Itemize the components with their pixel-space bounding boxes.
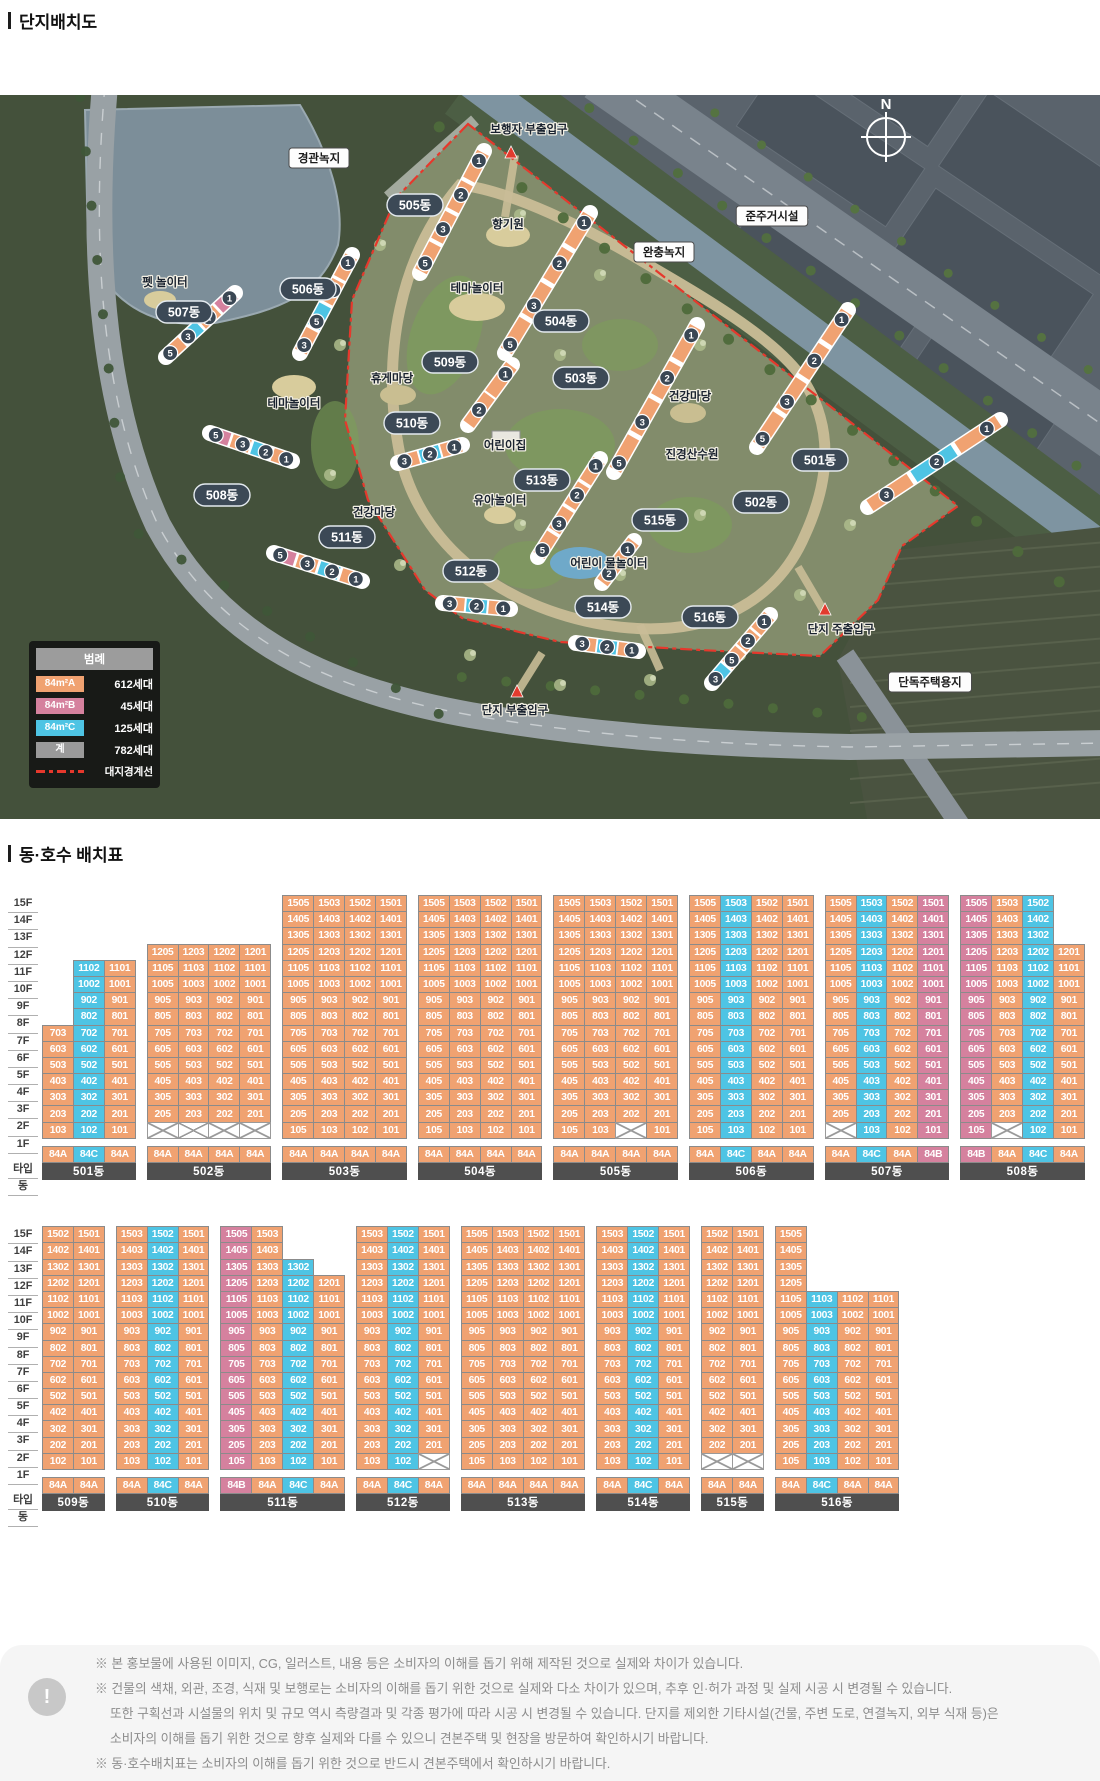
unit-cell: 802	[615, 1008, 647, 1025]
map-area-box: 경관녹지	[289, 148, 349, 168]
floor-label-column: 15F14F13F12F11F10F9F8F7F6F5F4F3F2F1F타입동	[8, 1226, 38, 1527]
unit-cell: 901	[553, 1323, 585, 1340]
entrance-number-badge: 2	[469, 599, 484, 614]
unit-cell: 101	[782, 1122, 814, 1139]
unit-cell: 1203	[313, 944, 345, 961]
unit-cell: 705	[282, 1025, 314, 1042]
floor-label: 9F	[8, 998, 38, 1016]
unit-cell: 202	[387, 1437, 419, 1454]
empty-slot	[73, 927, 105, 944]
unit-cell: 501	[239, 1057, 271, 1074]
unit-cell: 102	[480, 1122, 512, 1139]
floor-label: 8F	[8, 1015, 38, 1033]
unit-cell: 701	[782, 1025, 814, 1042]
type-cell: 84A	[492, 1477, 524, 1494]
unit-cell: 302	[523, 1420, 555, 1437]
unit-cell: 1402	[701, 1242, 733, 1259]
unit-cell: 1405	[825, 911, 857, 928]
unit-cell: 205	[282, 1105, 314, 1122]
unit-cell: 1101	[917, 960, 949, 977]
entrance-number-badge: 3	[181, 329, 196, 344]
unit-cell: 803	[116, 1340, 148, 1357]
unit-cell: 403	[492, 1404, 524, 1421]
unit-cell-crossed	[208, 1122, 240, 1139]
unit-cell: 701	[313, 1356, 345, 1373]
unit-cell: 1402	[615, 911, 647, 928]
unit-cell: 402	[42, 1404, 74, 1421]
unit-cell: 705	[461, 1356, 493, 1373]
unit-cell: 1001	[178, 1307, 210, 1324]
unit-cell: 703	[313, 1025, 345, 1042]
unit-cell: 1502	[615, 895, 647, 912]
unit-cell: 1303	[584, 927, 616, 944]
floor-label: 4F	[8, 1084, 38, 1102]
unit-cell: 602	[73, 1041, 105, 1058]
unit-cell: 505	[775, 1388, 807, 1405]
unit-cell: 1201	[658, 1275, 690, 1292]
unit-cell: 1302	[42, 1259, 74, 1276]
unit-cell: 902	[282, 1323, 314, 1340]
unit-cell: 502	[615, 1057, 647, 1074]
unit-cell: 905	[553, 992, 585, 1009]
empty-slot	[73, 944, 105, 961]
unit-cell: 1103	[449, 960, 481, 977]
unit-cell: 305	[282, 1089, 314, 1106]
unit-cell: 301	[375, 1089, 407, 1106]
type-cell: 84C	[1022, 1146, 1054, 1163]
unit-cell: 1501	[917, 895, 949, 912]
unit-cell: 1003	[356, 1307, 388, 1324]
unit-cell: 702	[282, 1356, 314, 1373]
unit-cell: 302	[208, 1089, 240, 1106]
entrance-number-badge: 1	[620, 542, 635, 557]
unit-cell: 202	[344, 1105, 376, 1122]
unit-cell: 303	[42, 1089, 74, 1106]
unit-cell: 902	[751, 992, 783, 1009]
unit-cell: 105	[553, 1122, 585, 1139]
unit-cell: 201	[868, 1437, 900, 1454]
unit-cell: 701	[418, 1356, 450, 1373]
unit-cell: 403	[806, 1404, 838, 1421]
unit-cell: 402	[615, 1073, 647, 1090]
empty-slot	[806, 1275, 838, 1292]
entrance-number-badge: 3	[300, 556, 315, 571]
unit-cell: 505	[282, 1057, 314, 1074]
unit-cell: 203	[251, 1437, 283, 1454]
unit-cell: 1405	[689, 911, 721, 928]
unit-cell: 601	[868, 1372, 900, 1389]
type-cell: 84A	[178, 1146, 210, 1163]
unit-cell: 401	[658, 1404, 690, 1421]
unit-cell: 1005	[689, 976, 721, 993]
svg-text:3: 3	[240, 440, 245, 451]
unit-cell: 402	[523, 1404, 555, 1421]
unit-cell: 1201	[553, 1275, 585, 1292]
type-cell: 84A	[689, 1146, 721, 1163]
type-cell: 84A	[701, 1477, 733, 1494]
unit-cell: 905	[689, 992, 721, 1009]
unit-cell: 1202	[208, 944, 240, 961]
unit-cell: 1002	[523, 1307, 555, 1324]
svg-text:5: 5	[507, 340, 513, 351]
svg-text:1: 1	[452, 443, 458, 454]
compass-north-letter: N	[881, 96, 892, 113]
unit-cell: 503	[806, 1388, 838, 1405]
svg-text:507동: 507동	[168, 306, 201, 320]
unit-cell: 1005	[825, 976, 857, 993]
unit-cell: 1202	[344, 944, 376, 961]
unit-cell: 1503	[116, 1226, 148, 1243]
unit-cell: 601	[375, 1041, 407, 1058]
unit-cell: 1003	[596, 1307, 628, 1324]
unit-cell: 305	[220, 1420, 252, 1437]
unit-cell: 1105	[418, 960, 450, 977]
unit-cell: 602	[344, 1041, 376, 1058]
unit-cell: 202	[523, 1437, 555, 1454]
unit-cell: 1205	[825, 944, 857, 961]
building-stack-504동: 1505150315021501140514031402140113051303…	[418, 895, 543, 1180]
unit-cell: 503	[991, 1057, 1023, 1074]
unit-cell: 1001	[1053, 976, 1085, 993]
unit-cell: 401	[73, 1404, 105, 1421]
unit-cell: 1401	[73, 1242, 105, 1259]
unit-cell: 1403	[116, 1242, 148, 1259]
unit-cell: 402	[344, 1073, 376, 1090]
unit-cell: 1105	[960, 960, 992, 977]
unit-cell: 703	[116, 1356, 148, 1373]
unit-cell: 705	[825, 1025, 857, 1042]
floor-label: 2F	[8, 1118, 38, 1136]
unit-cell: 102	[886, 1122, 918, 1139]
unit-cell: 401	[104, 1073, 136, 1090]
unit-cell: 902	[73, 992, 105, 1009]
unit-cell: 1102	[701, 1291, 733, 1308]
unit-cell: 1502	[480, 895, 512, 912]
unit-cell: 503	[596, 1388, 628, 1405]
type-cell: 84A	[596, 1477, 628, 1494]
unit-cell: 601	[732, 1372, 764, 1389]
unit-cell: 603	[356, 1372, 388, 1389]
unit-cell: 102	[42, 1453, 74, 1470]
unit-cell: 1103	[720, 960, 752, 977]
title-bar-mark	[8, 12, 11, 29]
unit-cell: 905	[282, 992, 314, 1009]
unit-cell: 701	[178, 1356, 210, 1373]
unit-cell: 601	[553, 1372, 585, 1389]
svg-text:3: 3	[531, 301, 536, 312]
unit-cell: 1401	[917, 911, 949, 928]
unit-cell: 1103	[116, 1291, 148, 1308]
unit-cell: 401	[1053, 1073, 1085, 1090]
svg-text:1: 1	[284, 454, 290, 465]
empty-slot	[147, 895, 179, 912]
unit-cell: 1303	[116, 1259, 148, 1276]
empty-slot	[42, 992, 74, 1009]
unit-cell: 1201	[239, 944, 271, 961]
empty-slot	[178, 927, 210, 944]
empty-slot	[104, 895, 136, 912]
unit-cell: 1403	[492, 1242, 524, 1259]
unit-cell: 1201	[418, 1275, 450, 1292]
floor-label-column: 15F14F13F12F11F10F9F8F7F6F5F4F3F2F1F타입동	[8, 895, 38, 1196]
map-building-pill: 509동	[422, 351, 478, 373]
unit-cell: 103	[116, 1453, 148, 1470]
unit-cell: 505	[960, 1057, 992, 1074]
unit-cell: 1502	[387, 1226, 419, 1243]
unit-cell: 405	[960, 1073, 992, 1090]
unit-cell: 1405	[461, 1242, 493, 1259]
disclaimer-panel: ! ※ 본 홍보물에 사용된 이미지, CG, 일러스트, 내용 등은 소비자의…	[0, 1645, 1100, 1781]
unit-cell: 1202	[480, 944, 512, 961]
entrance-number-badge: 2	[552, 256, 567, 271]
legend-swatch: 84m²C	[36, 720, 84, 736]
type-cell: 84A	[991, 1146, 1023, 1163]
unit-cell: 1401	[375, 911, 407, 928]
empty-slot	[1053, 927, 1085, 944]
empty-slot	[837, 1242, 869, 1259]
unit-cell: 501	[313, 1388, 345, 1405]
unit-cell: 1301	[782, 927, 814, 944]
unit-cell: 701	[917, 1025, 949, 1042]
unit-cell: 405	[689, 1073, 721, 1090]
building-name-bar: 512동	[356, 1493, 450, 1511]
unit-table-section: 15F14F13F12F11F10F9F8F7F6F5F4F3F2F1F타입동1…	[8, 895, 1096, 1196]
map-facility-label: 건강마당	[669, 389, 712, 403]
unit-cell: 1102	[886, 960, 918, 977]
entrance-number-badge: 2	[660, 370, 675, 385]
unit-cell: 502	[886, 1057, 918, 1074]
unit-cell: 905	[147, 992, 179, 1009]
unit-cell: 1303	[596, 1259, 628, 1276]
table-section-title: 동·호수 배치표	[8, 841, 123, 866]
unit-cell: 405	[220, 1404, 252, 1421]
unit-cell: 705	[553, 1025, 585, 1042]
entrance-number-badge: 1	[496, 601, 511, 616]
unit-cell: 601	[418, 1372, 450, 1389]
unit-cell: 102	[751, 1122, 783, 1139]
unit-cell-crossed	[732, 1453, 764, 1470]
svg-text:3: 3	[305, 559, 310, 570]
unit-cell: 501	[646, 1057, 678, 1074]
unit-cell: 402	[480, 1073, 512, 1090]
type-cell: 84A	[615, 1146, 647, 1163]
type-cell: 84C	[627, 1477, 659, 1494]
unit-cell: 101	[553, 1453, 585, 1470]
unit-cell: 402	[837, 1404, 869, 1421]
unit-cell: 1105	[553, 960, 585, 977]
empty-slot	[868, 1226, 900, 1243]
entrance-number-badge: 1	[979, 421, 994, 436]
unit-cell: 603	[313, 1041, 345, 1058]
type-cell: 84A	[782, 1146, 814, 1163]
unit-cell: 801	[418, 1340, 450, 1357]
unit-cell: 703	[720, 1025, 752, 1042]
unit-cell: 1005	[220, 1307, 252, 1324]
legend-row: 84m²C125세대	[36, 720, 153, 736]
unit-cell: 1102	[208, 960, 240, 977]
type-cell: 84C	[147, 1477, 179, 1494]
unit-cell: 1502	[344, 895, 376, 912]
empty-slot	[313, 1226, 345, 1243]
entrance-number-badge: 2	[740, 633, 755, 648]
map-building-pill: 501동	[792, 449, 848, 471]
unit-cell: 1001	[73, 1307, 105, 1324]
unit-cell: 103	[449, 1122, 481, 1139]
unit-cell: 603	[806, 1372, 838, 1389]
floor-label: 2F	[8, 1450, 38, 1468]
unit-cell: 301	[868, 1420, 900, 1437]
empty-slot	[313, 1242, 345, 1259]
map-building-pill: 511동	[319, 526, 375, 548]
unit-cell: 1101	[732, 1291, 764, 1308]
svg-text:경관녹지: 경관녹지	[298, 151, 340, 165]
unit-cell: 605	[418, 1041, 450, 1058]
unit-cell: 1102	[480, 960, 512, 977]
entrance-number-badge: 5	[163, 346, 178, 361]
floor-label: 3F	[8, 1101, 38, 1119]
unit-cell: 703	[42, 1025, 74, 1042]
entrance-number-badge: 1	[340, 255, 355, 270]
building-name-bar: 502동	[147, 1162, 272, 1180]
unit-cell: 1003	[178, 976, 210, 993]
unit-cell: 503	[313, 1057, 345, 1074]
unit-cell: 1302	[1022, 927, 1054, 944]
unit-cell: 1203	[356, 1275, 388, 1292]
entrance-number-badge: 1	[471, 153, 486, 168]
type-cell: 84A	[73, 1477, 105, 1494]
unit-cell: 403	[720, 1073, 752, 1090]
unit-cell: 301	[732, 1420, 764, 1437]
unit-cell: 603	[251, 1372, 283, 1389]
unit-cell: 405	[147, 1073, 179, 1090]
empty-slot	[868, 1275, 900, 1292]
svg-text:5: 5	[422, 259, 428, 270]
unit-cell: 1102	[282, 1291, 314, 1308]
unit-cell: 403	[42, 1073, 74, 1090]
map-facility-label: 펫 놀이터	[142, 275, 188, 289]
unit-cell: 1001	[313, 1307, 345, 1324]
unit-cell: 1401	[553, 1242, 585, 1259]
unit-cell: 302	[147, 1420, 179, 1437]
unit-cell: 203	[806, 1437, 838, 1454]
svg-text:510동: 510동	[396, 417, 429, 431]
unit-cell: 301	[658, 1420, 690, 1437]
title-bar-mark	[8, 845, 11, 862]
disclaimer-lines: ※ 본 홍보물에 사용된 이미지, CG, 일러스트, 내용 등은 소비자의 이…	[95, 1651, 1080, 1776]
unit-cell: 1101	[782, 960, 814, 977]
svg-text:5: 5	[314, 317, 320, 328]
unit-cell: 1301	[553, 1259, 585, 1276]
entrance-number-badge: 5	[535, 543, 550, 558]
unit-cell: 1405	[418, 911, 450, 928]
svg-text:2: 2	[458, 190, 463, 201]
svg-text:5: 5	[540, 546, 546, 557]
unit-cell: 305	[775, 1420, 807, 1437]
unit-cell: 1101	[418, 1291, 450, 1308]
unit-cell: 801	[553, 1340, 585, 1357]
unit-cell: 1205	[960, 944, 992, 961]
unit-cell: 805	[960, 1008, 992, 1025]
unit-cell: 602	[480, 1041, 512, 1058]
svg-text:512동: 512동	[455, 565, 488, 579]
unit-cell: 1402	[627, 1242, 659, 1259]
unit-cell: 1503	[492, 1226, 524, 1243]
map-building-pill: 515동	[632, 509, 688, 531]
unit-cell: 1005	[775, 1307, 807, 1324]
svg-text:1: 1	[581, 218, 587, 229]
unit-cell: 1402	[147, 1242, 179, 1259]
unit-cell: 905	[418, 992, 450, 1009]
unit-cell: 602	[837, 1372, 869, 1389]
unit-cell: 1103	[584, 960, 616, 977]
unit-cell: 302	[615, 1089, 647, 1106]
svg-text:515동: 515동	[644, 514, 677, 528]
legend-swatch: 84m²A	[36, 676, 84, 692]
unit-cell: 1205	[220, 1275, 252, 1292]
unit-cell: 1403	[991, 911, 1023, 928]
unit-cell: 603	[720, 1041, 752, 1058]
unit-cell: 1501	[658, 1226, 690, 1243]
type-cell: 84B	[917, 1146, 949, 1163]
type-cell: 84A	[42, 1146, 74, 1163]
unit-cell: 1003	[584, 976, 616, 993]
unit-cell: 1503	[356, 1226, 388, 1243]
unit-cell: 601	[73, 1372, 105, 1389]
floor-label: 9F	[8, 1329, 38, 1347]
unit-cell: 302	[886, 1089, 918, 1106]
unit-cell: 302	[282, 1420, 314, 1437]
unit-cell: 505	[220, 1388, 252, 1405]
unit-cell: 1402	[886, 911, 918, 928]
unit-cell: 903	[356, 1323, 388, 1340]
unit-cell: 1503	[449, 895, 481, 912]
floor-label: 5F	[8, 1398, 38, 1416]
unit-cell: 202	[42, 1437, 74, 1454]
unit-cell: 303	[720, 1089, 752, 1106]
unit-cell: 1103	[356, 1291, 388, 1308]
unit-cell: 1202	[751, 944, 783, 961]
unit-cell: 1405	[282, 911, 314, 928]
unit-cell: 105	[220, 1453, 252, 1470]
unit-cell: 602	[42, 1372, 74, 1389]
unit-cell: 1101	[178, 1291, 210, 1308]
unit-cell: 701	[732, 1356, 764, 1373]
unit-cell: 1102	[751, 960, 783, 977]
unit-cell: 605	[220, 1372, 252, 1389]
unit-cell: 1101	[313, 1291, 345, 1308]
entrance-number-badge: 5	[503, 337, 518, 352]
unit-cell: 802	[282, 1340, 314, 1357]
unit-cell: 903	[313, 992, 345, 1009]
unit-cell: 1503	[856, 895, 888, 912]
unit-cell: 1305	[553, 927, 585, 944]
page-title-text: 단지배치도	[19, 8, 97, 33]
building-name-bar: 505동	[553, 1162, 678, 1180]
floor-label: 1F	[8, 1467, 38, 1485]
unit-cell: 803	[356, 1340, 388, 1357]
unit-cell: 203	[313, 1105, 345, 1122]
unit-cell: 1002	[344, 976, 376, 993]
type-cell: 84B	[220, 1477, 252, 1494]
unit-cell: 1503	[313, 895, 345, 912]
svg-text:1: 1	[689, 331, 695, 342]
unit-cell: 502	[523, 1388, 555, 1405]
unit-cell: 1102	[837, 1291, 869, 1308]
unit-cell: 1402	[1022, 911, 1054, 928]
type-cell: 84A	[239, 1146, 271, 1163]
type-cell: 84A	[418, 1477, 450, 1494]
unit-cell: 401	[418, 1404, 450, 1421]
